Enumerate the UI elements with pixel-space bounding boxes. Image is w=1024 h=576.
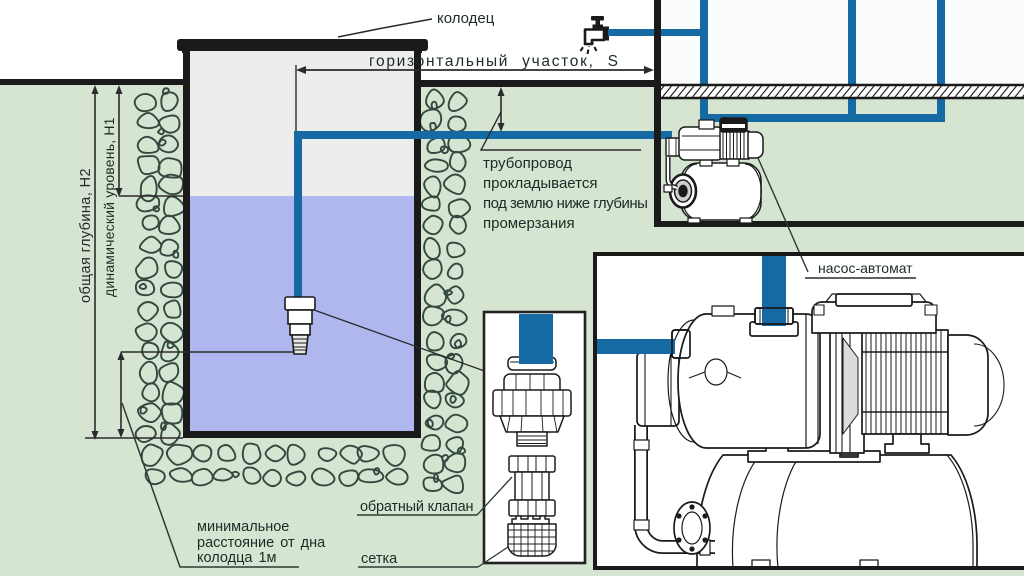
svg-text:обратный клапан: обратный клапан bbox=[360, 499, 473, 515]
svg-text:под землю ниже глубины: под землю ниже глубины bbox=[483, 195, 647, 212]
svg-text:колодец: колодец bbox=[437, 10, 495, 27]
svg-text:сетка: сетка bbox=[361, 551, 398, 567]
svg-text:трубопровод: трубопровод bbox=[483, 155, 572, 172]
svg-text:колодца 1м: колодца 1м bbox=[197, 550, 277, 566]
svg-text:динамический уровень, Н1: динамический уровень, Н1 bbox=[101, 117, 117, 297]
svg-text:промерзания: промерзания bbox=[483, 215, 575, 232]
svg-text:минимальное: минимальное bbox=[197, 519, 289, 535]
svg-text:общая глубина, Н2: общая глубина, Н2 bbox=[78, 168, 94, 303]
svg-text:горизонтальный участок, S: горизонтальный участок, S bbox=[369, 53, 620, 70]
svg-text:расстояние от дна: расстояние от дна bbox=[197, 535, 326, 551]
svg-text:прокладывается: прокладывается bbox=[483, 175, 597, 192]
svg-text:насос-автомат: насос-автомат bbox=[818, 260, 913, 276]
